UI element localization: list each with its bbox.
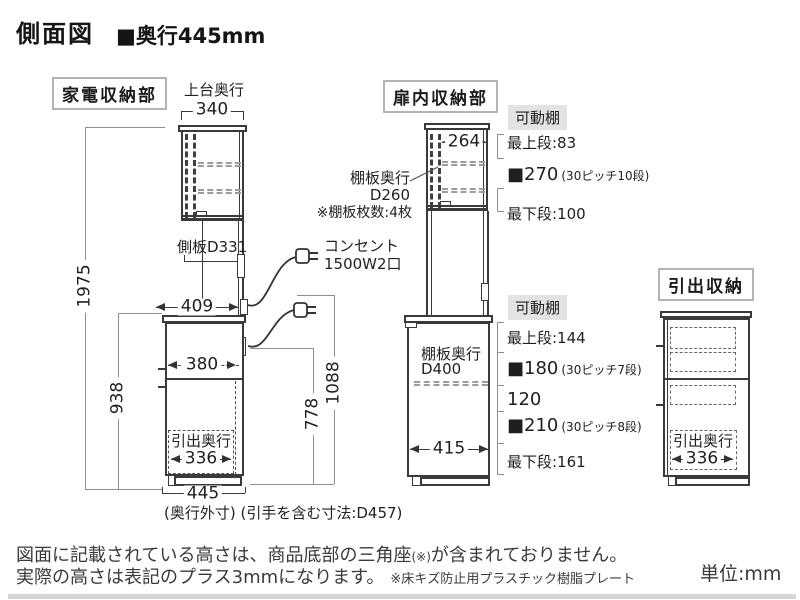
footer-note-line2: 実際の高さは表記のプラス3mmになります。※床キズ防止用プラスチック樹脂プレート	[16, 563, 635, 589]
base-foot-line	[668, 477, 669, 485]
dim-tick	[181, 111, 182, 120]
dim-340: 340	[193, 102, 231, 119]
movable-shelf-tag-lower: 可動棚	[508, 295, 567, 320]
range-bracket	[497, 188, 498, 211]
dim-938: 938	[110, 377, 127, 419]
side-view-diagram: 側面図 ■奥行445mm 家電収納部 上台奥行	[0, 0, 800, 600]
note2-asterisk-note: ※床キズ防止用プラスチック樹脂プレート	[390, 572, 635, 587]
base-foot-line	[168, 476, 169, 485]
dim-tick	[118, 313, 162, 314]
shelf-pin-holes	[430, 134, 441, 208]
arrowhead-left	[410, 445, 419, 453]
movable-shelf-line	[198, 162, 241, 167]
drawer-divider-line	[664, 378, 749, 380]
outlet-box	[481, 283, 489, 301]
handle-mark	[158, 386, 166, 388]
bracket-tick	[497, 411, 504, 412]
fixed-shelf	[183, 215, 243, 220]
dim-tick	[250, 348, 313, 349]
dim-tick	[243, 111, 244, 120]
arrowhead-right	[222, 455, 231, 463]
arrowhead-left	[156, 303, 165, 311]
outlet-box-upper	[237, 254, 245, 278]
appliance-section-label: 家電収納部	[52, 77, 167, 110]
bottom-divider-bar	[8, 594, 796, 599]
movable-shelf-line	[414, 381, 488, 386]
base-foot-line	[668, 485, 675, 486]
unit-label: 単位:mm	[700, 559, 781, 586]
arrowhead-right	[229, 303, 238, 311]
movable-shelf-line	[198, 189, 241, 194]
shelf-front-edge	[196, 211, 207, 216]
bracket-tick	[497, 188, 504, 189]
dim-778: 778	[305, 393, 322, 435]
arrowhead-right	[479, 445, 488, 453]
base-foot-line	[168, 485, 174, 486]
shelf-depth-caption: 棚板奥行	[350, 170, 410, 187]
bracket-tick	[497, 443, 504, 444]
power-cord	[248, 257, 296, 306]
arrowhead-right	[724, 455, 733, 463]
bracket-tick	[497, 134, 504, 135]
movable-shelf-tag-upper: 可動棚	[508, 105, 567, 130]
handle-mark	[656, 345, 664, 347]
shelf-row: 120	[507, 389, 541, 410]
depth-spec-label: ■奥行445mm	[116, 20, 265, 50]
bracket-tick	[497, 322, 504, 323]
dim-tick	[85, 127, 165, 128]
shelf-pitch-note: (30ピッチ8段)	[561, 420, 641, 434]
shelf-count-note: ※棚板枚数:4枚	[317, 205, 412, 221]
shelf-row: ■180(30ピッチ7段)	[507, 358, 642, 379]
shelf-row: 最上段:144	[507, 327, 586, 348]
cabinet-top-panel	[660, 311, 752, 318]
base-foot-line	[412, 485, 420, 486]
depth-outer-note: (奥行外寸) (引手を含む寸法:D457)	[164, 505, 402, 522]
side-panel-inner-line	[431, 211, 432, 315]
shelf-pitch-value: ■180	[507, 358, 558, 379]
top-depth-caption: 上台奥行	[184, 82, 244, 99]
drawer-dashed-line	[235, 381, 236, 475]
movable-shelf-line	[442, 161, 485, 166]
page-title: 側面図	[16, 14, 94, 49]
dim-336: 336	[683, 451, 721, 468]
handle-mark	[656, 404, 664, 406]
shelf-pitch-note: (30ピッチ7段)	[561, 363, 641, 377]
dim-tick	[250, 484, 313, 485]
arrowhead-left	[171, 455, 180, 463]
dim-415: 415	[430, 441, 468, 458]
shelf-pitch-value: ■270	[507, 164, 558, 185]
arrowhead-right	[227, 361, 236, 369]
shelf-front-edge	[440, 201, 451, 206]
dim-336: 336	[182, 451, 220, 468]
shelf-depth-value: D260	[370, 187, 410, 204]
drawer-dashed-box	[670, 385, 736, 405]
base-plinth	[675, 477, 750, 486]
note1-asterisk: (※)	[411, 550, 430, 564]
shelf-row: 最下段:161	[507, 451, 586, 472]
dim-tick	[313, 484, 334, 485]
dim-264: 264	[445, 134, 483, 151]
shelf-pitch-note: (30ピッチ10段)	[561, 169, 649, 183]
bracket-tick	[497, 474, 504, 475]
shelf-pin-holes	[185, 134, 196, 218]
handle-mark	[158, 368, 166, 370]
bracket-tick	[497, 211, 504, 212]
dim-tick	[162, 487, 163, 493]
dim-380: 380	[183, 357, 221, 374]
dim-tick	[85, 489, 162, 490]
dim-1088: 1088	[326, 356, 343, 409]
shelf-row: 最上段:83	[507, 132, 576, 153]
dim-tick	[297, 295, 334, 296]
plug-prongs-icon	[307, 307, 316, 313]
dim-409: 409	[178, 299, 216, 316]
plug-icon	[296, 249, 309, 263]
base-foot-line	[412, 477, 413, 485]
arrowhead-left	[168, 361, 177, 369]
plug-icon	[294, 303, 307, 317]
side-panel-dim-line	[184, 261, 243, 262]
outlet-caption-line1: コンセント	[324, 238, 399, 255]
drawer-section-label: 引出収納	[658, 268, 754, 301]
dim-445: 445	[184, 486, 222, 503]
note2-main: 実際の高さは表記のプラス3mmになります。	[16, 567, 384, 588]
dim-1975: 1975	[77, 259, 94, 312]
shelf-row: ■270(30ピッチ10段)	[507, 164, 649, 185]
arrowhead-left	[672, 455, 681, 463]
movable-shelf-line	[442, 188, 485, 193]
shelf-row: ■210(30ピッチ8段)	[507, 415, 642, 436]
fixed-shelf	[428, 205, 486, 210]
plug-prongs-icon	[309, 253, 318, 259]
front-edge-tab	[405, 322, 417, 328]
lower-shelf-depth-value: D400	[421, 361, 461, 378]
shelf-pitch-value: ■210	[507, 415, 558, 436]
base-plinth	[420, 477, 490, 486]
outlet-box-middle	[240, 299, 248, 315]
drawer-dashed-box	[670, 352, 736, 372]
door-section-label: 扉内収納部	[383, 80, 498, 113]
side-panel-label: 側板D331	[177, 239, 247, 256]
bracket-tick	[497, 352, 504, 353]
power-cord	[248, 310, 294, 347]
shelf-row: 最下段:100	[507, 203, 586, 224]
range-bracket	[497, 322, 498, 474]
drawer-dashed-box	[670, 327, 736, 349]
range-bracket	[497, 134, 498, 158]
bracket-tick	[497, 385, 504, 386]
drawer-divider-line	[166, 378, 243, 380]
dim-tick	[245, 487, 246, 493]
bracket-tick	[497, 158, 504, 159]
side-panel-line	[426, 211, 428, 315]
outlet-caption-line2: 1500W2口	[324, 256, 402, 273]
back-panel-line	[239, 132, 240, 218]
front-panel-inner-line	[667, 320, 668, 475]
